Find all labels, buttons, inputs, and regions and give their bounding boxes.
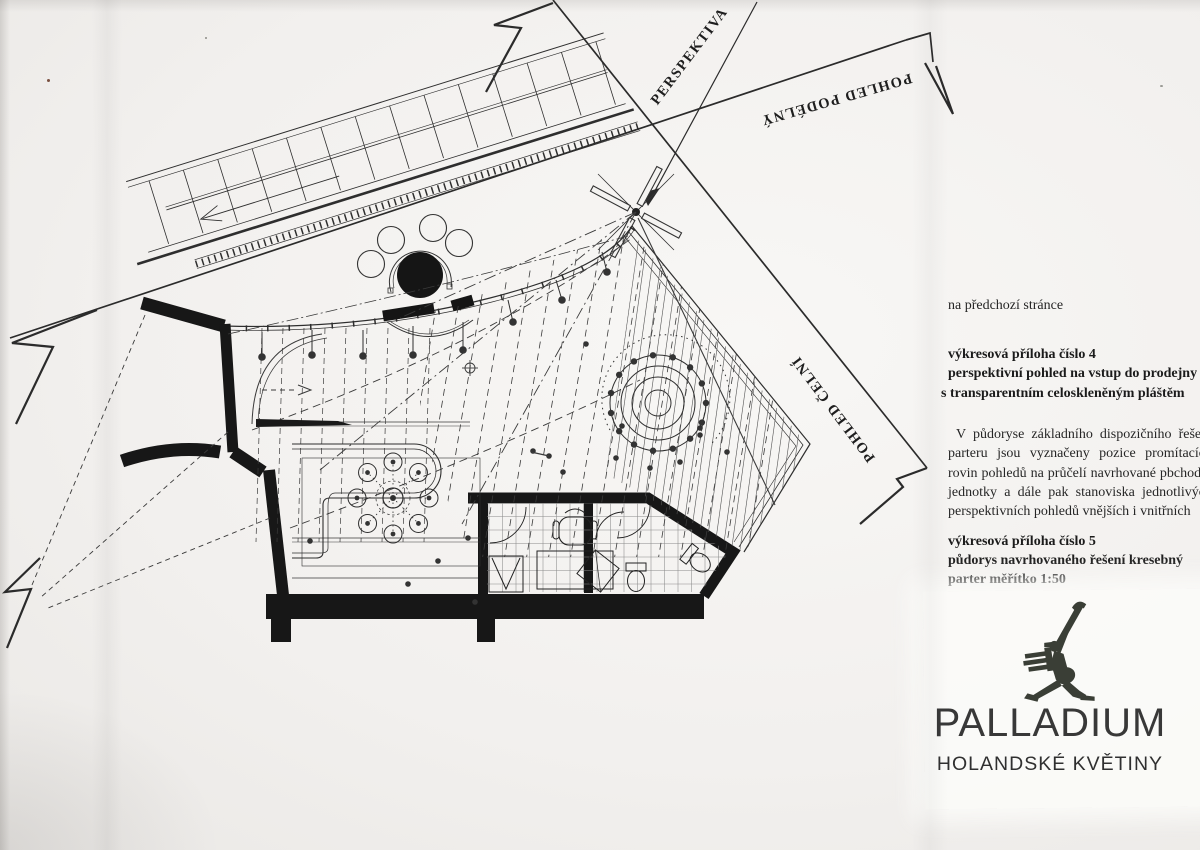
scan-speck xyxy=(1160,85,1163,87)
bottom-wall xyxy=(266,594,704,619)
attachment5-note: výkresová příloha číslo 5 půdorys navrho… xyxy=(948,532,1200,590)
office-interior xyxy=(487,503,733,592)
section-flag-left xyxy=(12,310,97,424)
section-flag-bottom-left xyxy=(5,558,40,648)
escalator xyxy=(113,31,640,285)
cafe-chair xyxy=(358,251,385,278)
notes-column: na předchozí stránce výkresová příloha č… xyxy=(948,296,1200,589)
direction-arrow xyxy=(203,176,340,219)
scan-speck xyxy=(205,37,207,39)
section-line-frontal xyxy=(553,0,927,468)
circular-display xyxy=(602,335,730,471)
section-flag-bottom-right xyxy=(860,468,927,524)
section-flag-top-center xyxy=(486,3,553,92)
open-arrow-icon xyxy=(298,385,311,395)
attachment4-line2: s transparentním celoskleněným pláštěm xyxy=(941,384,1200,403)
standpoint-marker xyxy=(462,360,478,376)
brand-subtitle: HOLANDSKÉ KVĚTINY xyxy=(928,753,1172,776)
curved-wall xyxy=(142,303,224,326)
attachment5-line1: půdorys navrhovaného řešení kresebný xyxy=(948,551,1200,570)
office-walls xyxy=(468,498,733,596)
column xyxy=(397,252,443,298)
wall-stub xyxy=(271,619,291,642)
flower-display xyxy=(348,453,438,543)
scanned-page: PERSPEKTIVA POHLED PODÉLNÝ POHLED ČELNÍ … xyxy=(0,0,1200,850)
note-intro: na předchozí stránce xyxy=(948,296,1200,315)
note-body: V půdoryse základního dispozičního řešen… xyxy=(948,425,1200,522)
facade-wall-band xyxy=(383,308,434,316)
facade-wall-band xyxy=(452,300,473,306)
palladium-figure-icon xyxy=(1014,598,1098,708)
tread-tick-strip xyxy=(196,126,639,264)
outer-curved-wall xyxy=(122,449,220,461)
attachment5-title: výkresová příloha číslo 5 xyxy=(948,532,1200,551)
mullion-hatch xyxy=(592,230,827,575)
cafe-chair xyxy=(446,230,473,257)
section-flag-top-right xyxy=(925,63,953,114)
door-swing xyxy=(617,505,650,538)
attachment4-line1: perspektivní pohled na vstup do prodejny xyxy=(948,364,1200,383)
attachment5-line2: parter měřítko 1:50 xyxy=(948,570,1200,589)
mall-seating xyxy=(358,215,473,299)
attachment4-note: výkresová příloha číslo 4 perspektivní p… xyxy=(948,345,1200,403)
cabinet xyxy=(489,556,523,592)
brand-name: PALLADIUM xyxy=(928,701,1172,746)
toilet xyxy=(626,563,646,592)
tile-grid xyxy=(487,503,733,592)
attachment4-title: výkresová příloha číslo 4 xyxy=(948,345,1200,364)
display-zone-frame xyxy=(302,458,480,566)
left-floor-strips xyxy=(256,328,430,542)
scan-speck xyxy=(47,79,50,82)
cafe-chair xyxy=(378,227,405,254)
cafe-chair xyxy=(420,215,447,242)
toilet xyxy=(680,544,715,578)
wall-stub xyxy=(477,619,495,642)
